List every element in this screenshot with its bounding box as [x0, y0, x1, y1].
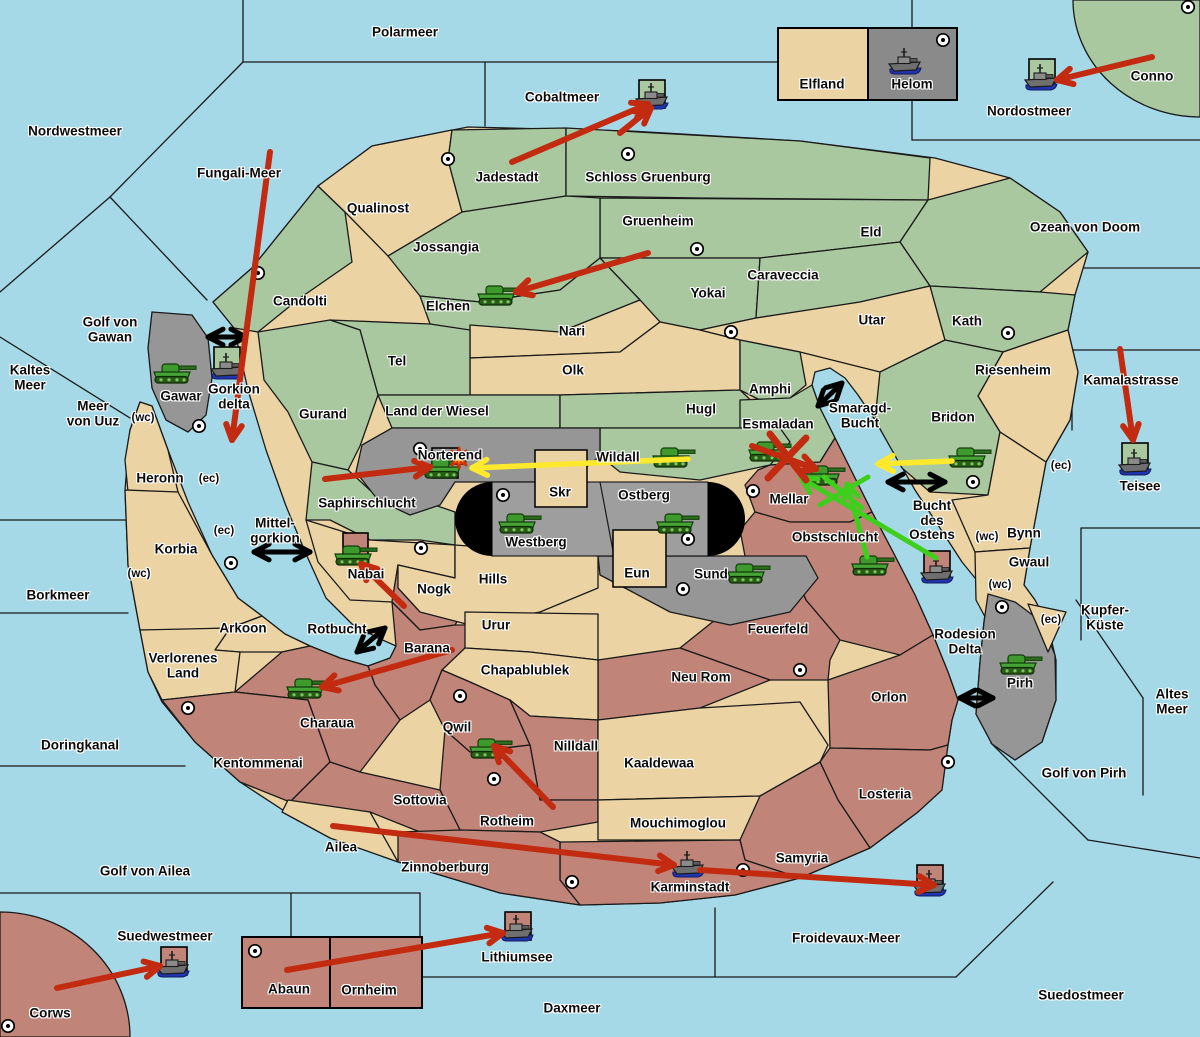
wargame-map: PolarmeerNordwestmeerFungali-MeerCobaltm…: [0, 0, 1200, 1037]
town-marker: [747, 485, 759, 497]
town-marker: [967, 476, 979, 488]
territory-eun[interactable]: [613, 530, 666, 587]
territory-skr[interactable]: [535, 450, 587, 507]
town-marker: [937, 34, 949, 46]
territory-land-der-wiesel[interactable]: [378, 395, 560, 428]
town-marker: [182, 702, 194, 714]
town-marker: [497, 489, 509, 501]
map-canvas: [0, 0, 1200, 1037]
town-marker: [691, 243, 703, 255]
town-marker: [566, 876, 578, 888]
explosion-marker: [448, 447, 470, 469]
town-marker: [1182, 1, 1194, 13]
town-marker: [442, 153, 454, 165]
town-marker: [249, 945, 261, 957]
town-marker: [996, 601, 1008, 613]
town-marker: [677, 583, 689, 595]
town-marker: [682, 533, 694, 545]
town-marker: [2, 1020, 14, 1032]
town-marker: [225, 557, 237, 569]
town-marker: [1002, 327, 1014, 339]
town-marker: [725, 326, 737, 338]
town-marker: [414, 443, 426, 455]
town-marker: [415, 542, 427, 554]
town-marker: [488, 773, 500, 785]
town-marker: [942, 756, 954, 768]
town-marker: [454, 690, 466, 702]
town-marker: [622, 148, 634, 160]
town-marker: [193, 420, 205, 432]
territory-elfland[interactable]: [778, 28, 868, 100]
town-marker: [794, 664, 806, 676]
